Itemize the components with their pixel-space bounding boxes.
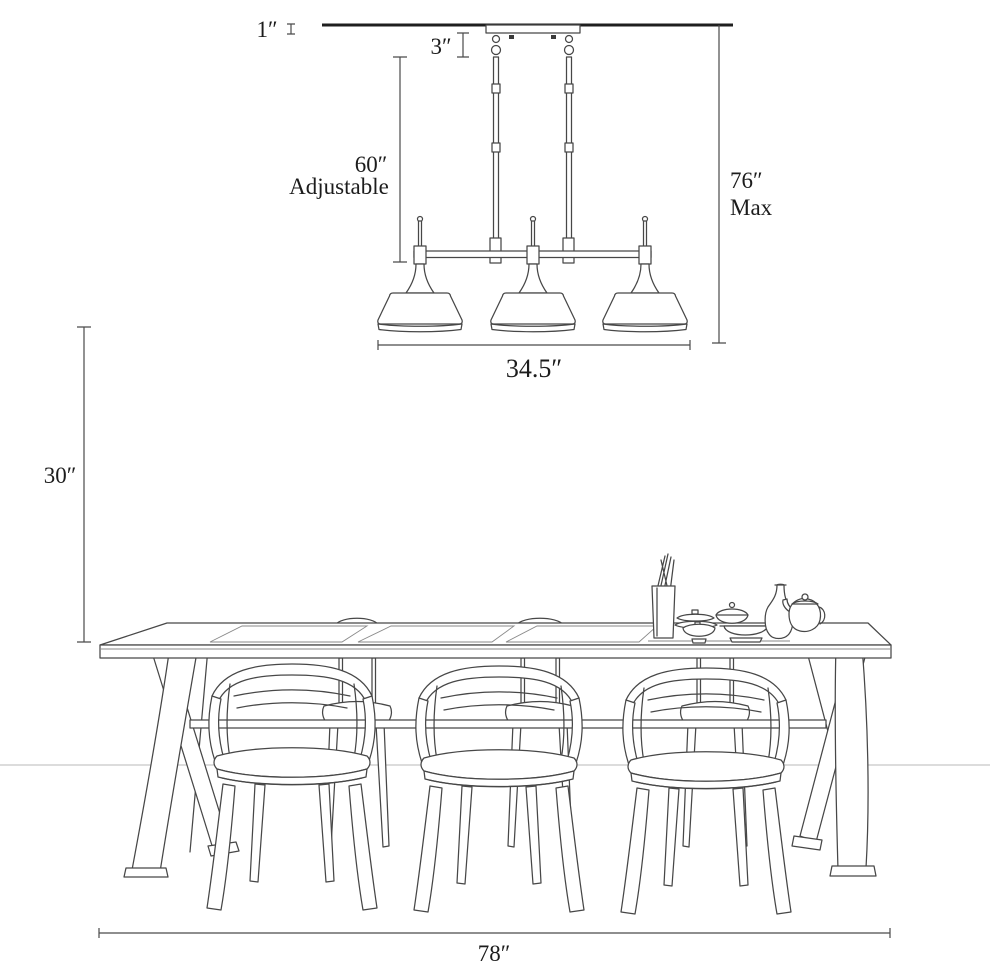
- dim-canopy-height: 1″: [256, 17, 295, 42]
- table-height-label: 30″: [44, 463, 77, 488]
- dim-table-length: 78″: [99, 928, 890, 966]
- table-leg-right: [792, 646, 876, 876]
- dim-max-height: 76″ Max: [712, 25, 773, 343]
- lamp-unit-center: [491, 217, 575, 332]
- lamp-unit-left: [378, 217, 462, 332]
- chair-1: [207, 664, 377, 910]
- table-stretcher: [190, 720, 826, 728]
- hanger-height-label: 3″: [430, 34, 451, 59]
- canopy-screw-right: [551, 35, 556, 39]
- chopstick-cup: [652, 554, 675, 638]
- hanger-left: [490, 36, 501, 264]
- canopy-screw-left: [509, 35, 514, 39]
- hanger-right: [563, 36, 574, 264]
- diagram-canvas: 1″ 3″ 60″ Adjustable 76″ Max 34.5″ 30″ 7…: [0, 0, 990, 980]
- cord-note-label: Adjustable: [289, 174, 389, 199]
- table-length-label: 78″: [478, 941, 511, 966]
- lamp-unit-right: [603, 217, 687, 332]
- table-edge: [100, 645, 891, 658]
- front-chairs: [207, 664, 791, 914]
- dim-fixture-width: 34.5″: [378, 340, 690, 383]
- lidded-bowl: [716, 603, 748, 624]
- max-height-label: 76″: [730, 168, 763, 193]
- canopy: [486, 25, 580, 33]
- fixture-width-label: 34.5″: [506, 354, 562, 383]
- dim-table-height: 30″: [44, 327, 91, 642]
- dim-cord-length: 60″ Adjustable: [289, 57, 407, 262]
- dimension-diagram: 1″ 3″ 60″ Adjustable 76″ Max 34.5″ 30″ 7…: [0, 0, 990, 980]
- dim-hanger-height: 3″: [430, 33, 469, 59]
- max-note-label: Max: [730, 195, 773, 220]
- canopy-height-label: 1″: [256, 17, 277, 42]
